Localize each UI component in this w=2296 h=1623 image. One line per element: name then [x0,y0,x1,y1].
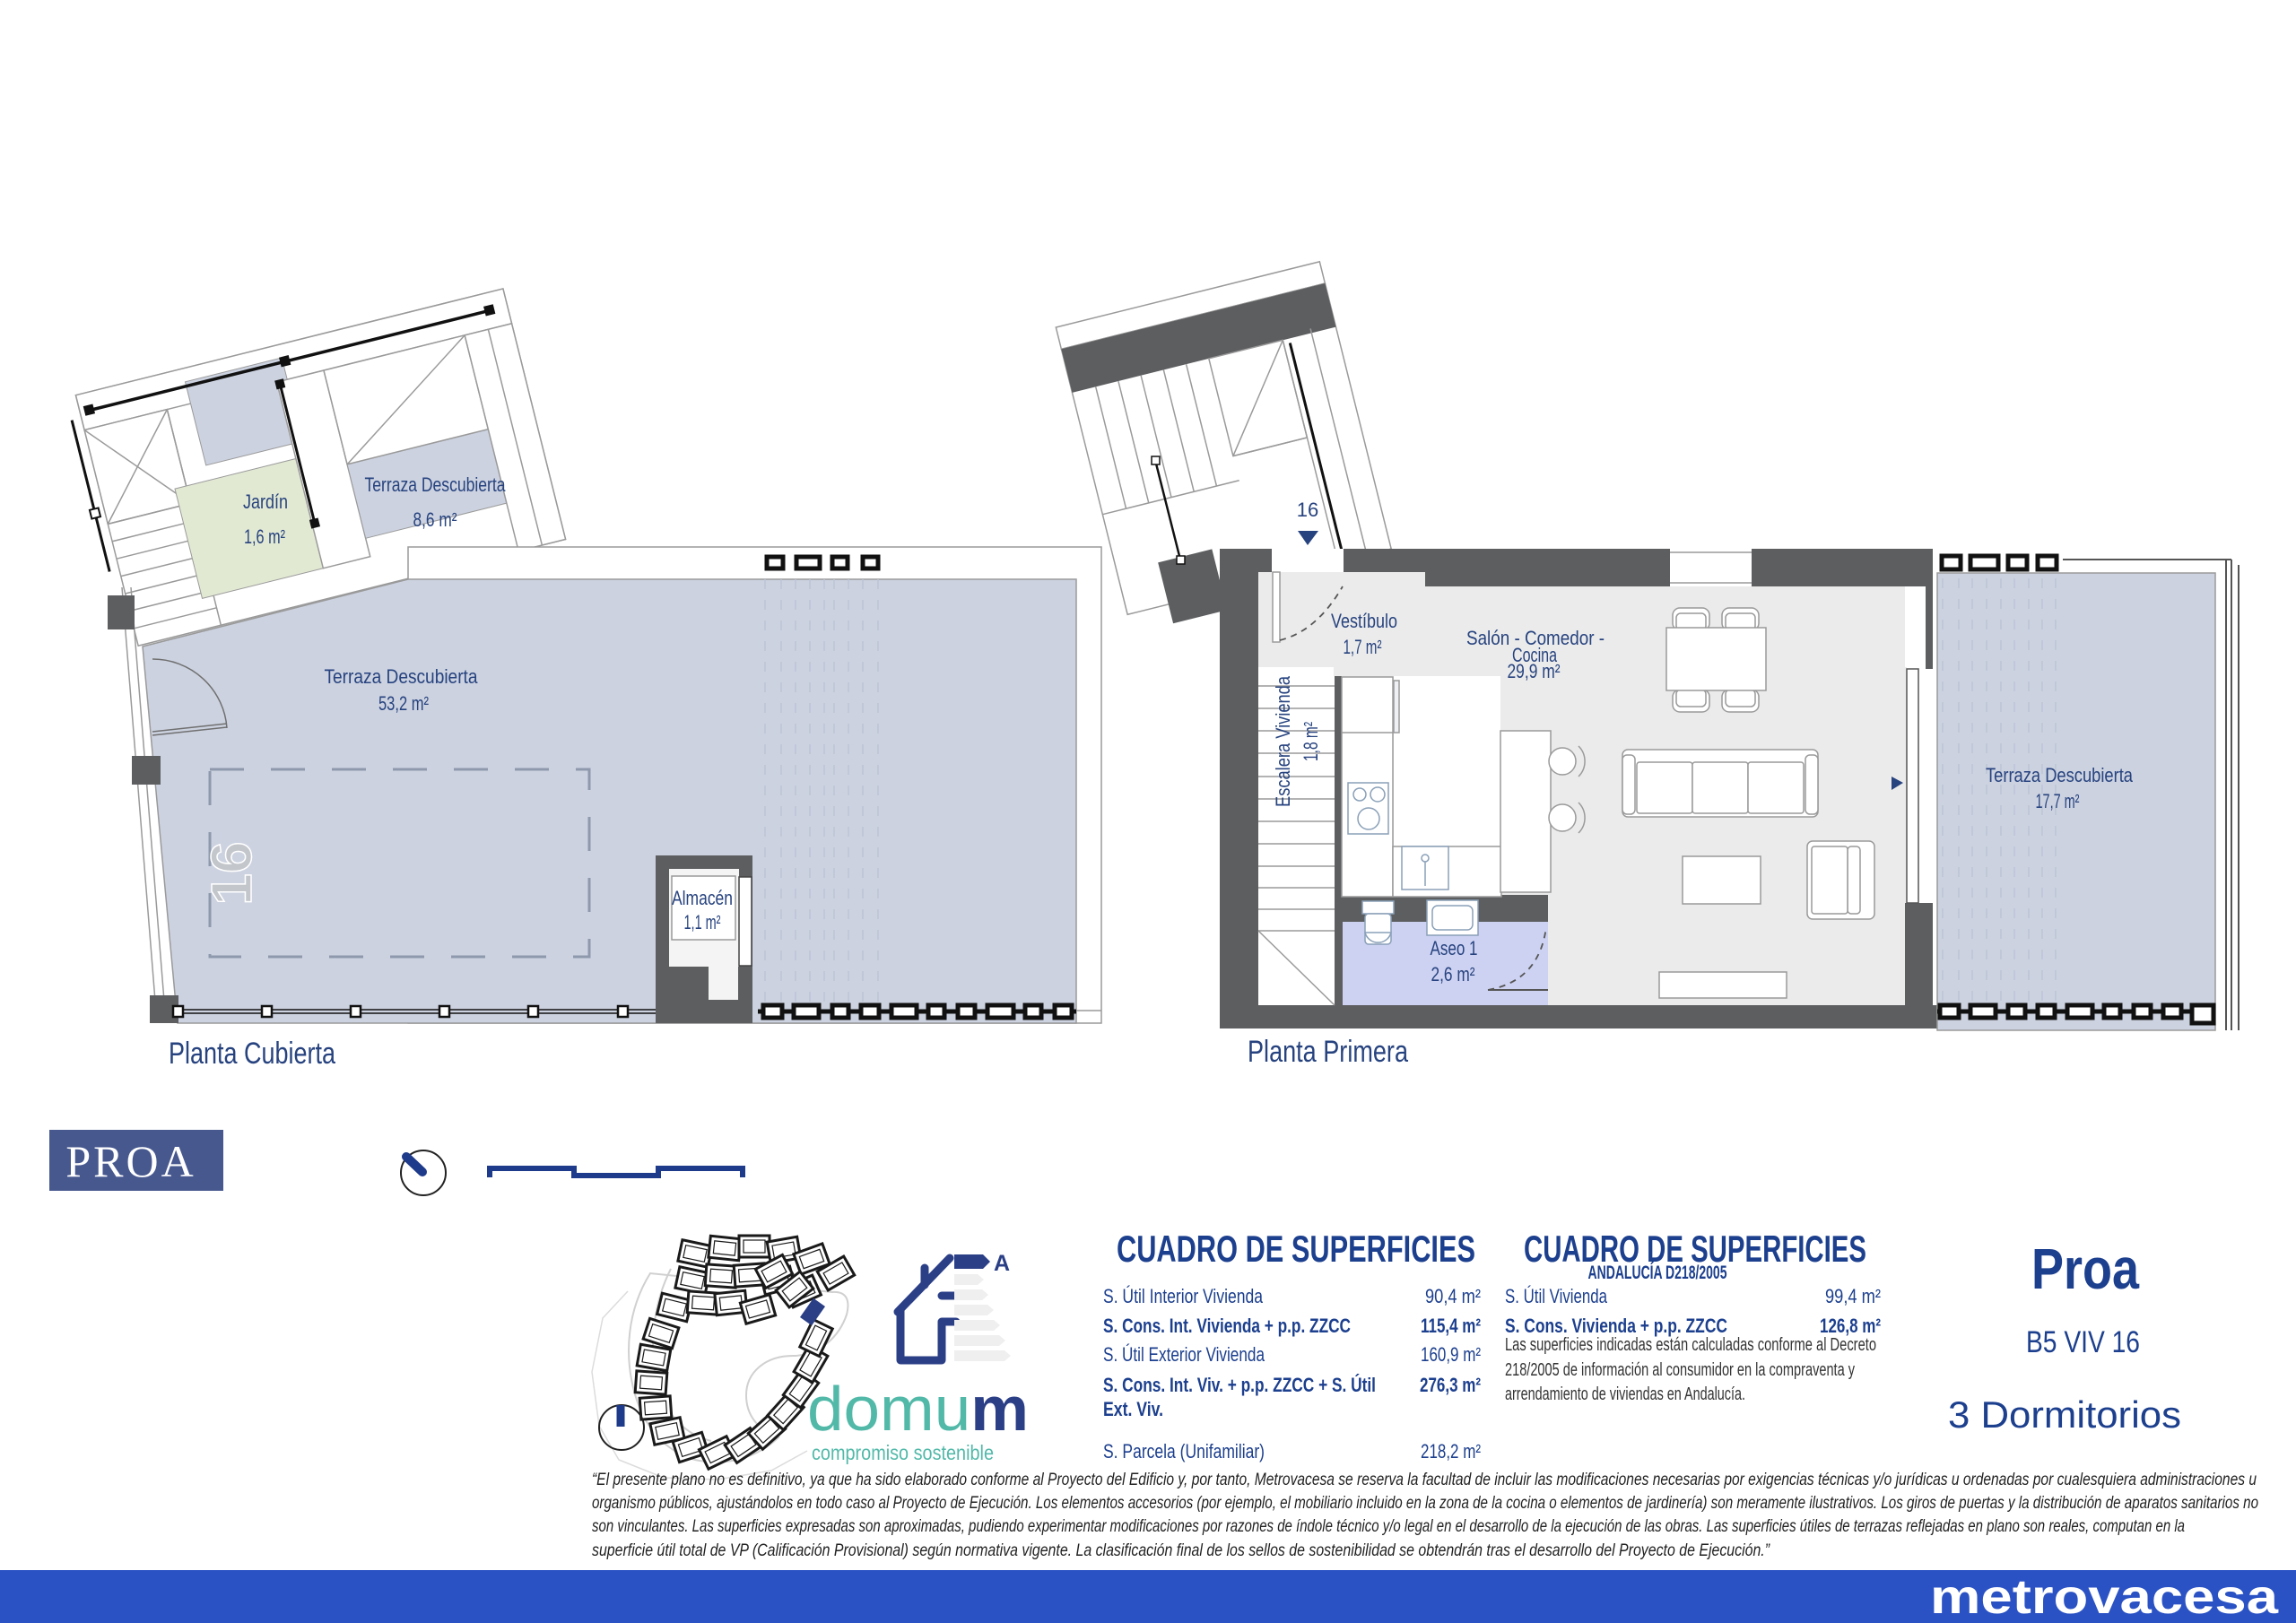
svg-text:Terraza Descubierta: Terraza Descubierta [1986,764,2134,786]
svg-text:S. Cons. Int. Vivienda + p.p.: S. Cons. Int. Vivienda + p.p. ZZCC [1103,1315,1351,1337]
svg-text:CUADRO DE SUPERFICIES: CUADRO DE SUPERFICIES [1117,1228,1475,1270]
svg-text:son vinculantes. Las superfici: son vinculantes. Las superficies expresa… [592,1517,2185,1536]
svg-text:Jardín: Jardín [243,490,288,513]
svg-text:Terraza Descubierta: Terraza Descubierta [325,665,479,688]
svg-text:126,8 m²: 126,8 m² [1820,1315,1881,1337]
svg-text:99,4 m²: 99,4 m² [1825,1285,1881,1307]
svg-text:1,8 m²: 1,8 m² [1300,722,1322,761]
svg-text:Planta Cubierta: Planta Cubierta [169,1037,335,1071]
svg-text:29,9 m²: 29,9 m² [1508,660,1561,682]
svg-text:3 Dormitorios: 3 Dormitorios [1948,1393,2181,1436]
svg-text:Proa: Proa [2031,1237,2139,1301]
svg-text:2,6 m²: 2,6 m² [1431,963,1475,985]
svg-text:Terraza Descubierta: Terraza Descubierta [365,473,507,496]
svg-text:Escalera Vivienda: Escalera Vivienda [1272,675,1294,807]
svg-text:S. Útil Vivienda: S. Útil Vivienda [1505,1285,1608,1307]
svg-text:organismo públicos, ajustándol: organismo públicos, ajustándolos en todo… [592,1494,2258,1513]
svg-text:ANDALUCÍA D218/2005: ANDALUCÍA D218/2005 [1588,1263,1727,1283]
svg-text:S. Cons. Vivienda + p.p. ZZCC: S. Cons. Vivienda + p.p. ZZCC [1505,1315,1727,1337]
svg-text:compromiso sostenible: compromiso sostenible [812,1441,994,1464]
svg-text:domum: domum [807,1374,1029,1444]
svg-text:17,7 m²: 17,7 m² [2036,790,2080,812]
svg-text:Ext. Viv.: Ext. Viv. [1103,1398,1163,1420]
svg-text:Aseo 1: Aseo 1 [1431,937,1478,959]
svg-text:90,4 m²: 90,4 m² [1425,1285,1481,1307]
svg-text:1,1 m²: 1,1 m² [684,911,721,933]
svg-text:276,3 m²: 276,3 m² [1420,1374,1481,1396]
svg-text:53,2 m²: 53,2 m² [378,692,429,715]
svg-text:16: 16 [199,841,264,905]
svg-text:16: 16 [1297,499,1318,521]
svg-text:Las superficies indicadas está: Las superficies indicadas están calculad… [1505,1335,1876,1355]
svg-text:S. Parcela (Unifamiliar): S. Parcela (Unifamiliar) [1103,1440,1265,1462]
svg-text:160,9 m²: 160,9 m² [1421,1343,1481,1366]
svg-text:B5 VIV 16: B5 VIV 16 [2026,1325,2140,1359]
svg-text:218/2005 de información al con: 218/2005 de información al consumidor en… [1505,1360,1855,1380]
svg-text:8,6 m²: 8,6 m² [413,508,457,531]
svg-text:Almacén: Almacén [672,887,733,909]
svg-text:superficie útil total de VP (C: superficie útil total de VP (Calificació… [592,1541,1770,1560]
svg-text:metrovacesa: metrovacesa [1930,1570,2279,1623]
svg-text:A: A [994,1251,1010,1276]
svg-text:1,7 m²: 1,7 m² [1344,636,1382,658]
svg-text:“El presente plano no es defin: “El presente plano no es definitivo, ya … [592,1471,2257,1489]
svg-text:S. Útil Interior Vivienda: S. Útil Interior Vivienda [1103,1285,1264,1307]
svg-text:218,2 m²: 218,2 m² [1421,1440,1481,1462]
svg-text:Planta Primera: Planta Primera [1248,1035,1408,1069]
svg-text:arrendamiento de viviendas en: arrendamiento de viviendas en Andalucía. [1505,1384,1745,1404]
svg-text:115,4 m²: 115,4 m² [1421,1315,1481,1337]
svg-text:S. Cons. Int. Viv. + p.p. ZZCC: S. Cons. Int. Viv. + p.p. ZZCC + S. Útil [1103,1374,1376,1396]
svg-text:PROA: PROA [65,1136,196,1186]
svg-text:Vestíbulo: Vestíbulo [1331,610,1397,632]
svg-text:S. Útil Exterior Vivienda: S. Útil Exterior Vivienda [1103,1343,1265,1366]
svg-text:1,6 m²: 1,6 m² [244,525,285,548]
